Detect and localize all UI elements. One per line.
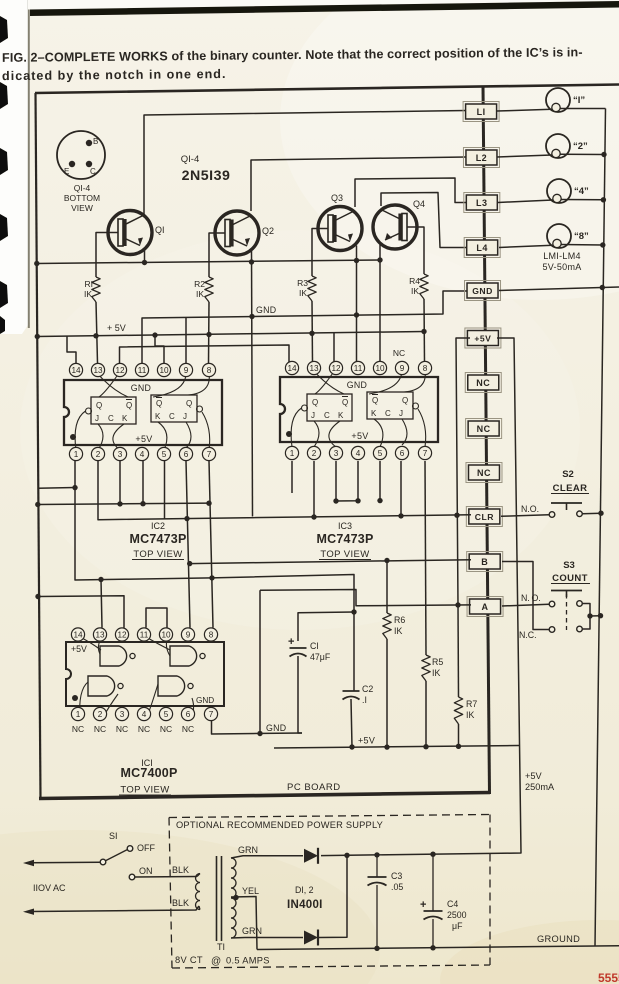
svg-text:TI: TI [217,942,225,952]
svg-text:TOP VIEW: TOP VIEW [320,549,369,560]
svg-text:L3: L3 [476,198,488,208]
svg-text:R5: R5 [432,657,443,667]
svg-text:MC7473P: MC7473P [130,532,187,546]
svg-text:N. O.: N. O. [521,593,541,603]
svg-text:IK: IK [299,288,307,298]
svg-text:+: + [420,899,426,911]
svg-text:Q: Q [126,401,132,410]
svg-text:+: + [288,636,294,648]
svg-text:NC: NC [476,378,490,388]
svg-text:TOP VIEW: TOP VIEW [120,785,169,796]
svg-text:@: @ [211,956,221,967]
svg-text:5: 5 [164,710,169,719]
svg-text:47μF: 47μF [310,652,331,662]
svg-text:12: 12 [331,364,341,373]
svg-text:YEL: YEL [242,886,259,896]
svg-text:NC: NC [160,724,172,734]
svg-text:CI: CI [310,641,319,651]
svg-text:1: 1 [74,450,79,459]
svg-text:C2: C2 [362,684,373,694]
svg-text:13: 13 [93,366,103,375]
svg-text:Q: Q [312,398,318,407]
svg-text:Q: Q [96,401,102,410]
svg-text:7: 7 [423,449,428,458]
svg-text:TOP VIEW: TOP VIEW [133,549,182,560]
svg-text:GND: GND [472,286,493,296]
svg-text:K: K [122,414,128,423]
svg-text:QI: QI [155,225,165,235]
svg-text:QI-4: QI-4 [181,154,199,165]
svg-text:5: 5 [378,449,383,458]
svg-text:4: 4 [356,449,361,458]
svg-text:14: 14 [71,366,81,375]
svg-text:ON: ON [139,866,153,876]
svg-text:IK: IK [84,289,92,299]
svg-text:GND: GND [196,696,214,705]
svg-text:Q2: Q2 [262,226,274,236]
svg-text:5: 5 [162,450,167,459]
svg-text:QI-4: QI-4 [74,183,91,193]
svg-text:NC: NC [477,468,491,478]
svg-text:IIOV AC: IIOV AC [33,883,66,893]
svg-text:2: 2 [312,449,317,458]
svg-text:J: J [311,411,315,420]
svg-text:Q: Q [372,396,378,405]
svg-text:250mA: 250mA [525,782,555,792]
svg-text:8V CT: 8V CT [175,955,203,965]
svg-text:Q: Q [342,398,348,407]
svg-text:K: K [338,411,344,420]
svg-text:GND: GND [266,723,286,733]
svg-text:B: B [481,557,488,567]
svg-text:C: C [385,409,391,418]
svg-text:OPTIONAL RECOMMENDED POWER: OPTIONAL RECOMMENDED POWER SUPPLY [176,820,383,830]
svg-text:C3: C3 [391,871,402,881]
svg-text:7: 7 [209,710,214,719]
svg-text:NC: NC [94,724,106,734]
svg-text:5V-50mA: 5V-50mA [542,262,581,272]
svg-text:BLK: BLK [172,865,189,875]
svg-text:BOTTOM: BOTTOM [64,193,100,203]
svg-text:“I”: “I” [573,95,585,106]
svg-text:IK: IK [196,289,204,299]
svg-text:IC2: IC2 [151,521,165,531]
svg-text:55555: 55555 [598,971,619,984]
svg-text:11: 11 [138,366,147,375]
svg-text:E: E [64,167,69,176]
svg-text:NC: NC [72,724,84,734]
svg-text:μF: μF [452,921,463,931]
svg-text:RI: RI [85,279,94,289]
svg-text:IC3: IC3 [338,521,352,531]
svg-text:“8”: “8” [574,231,589,242]
svg-text:C: C [169,412,175,421]
svg-text:14: 14 [73,631,83,640]
svg-text:3: 3 [334,449,339,458]
svg-text:+5V: +5V [358,736,375,746]
svg-text:7: 7 [207,450,212,459]
svg-text:C: C [108,414,114,423]
svg-text:+5V: +5V [135,434,152,444]
svg-text:N.O.: N.O. [521,504,539,514]
svg-text:LI: LI [477,107,486,117]
svg-text:11: 11 [140,631,149,640]
svg-text:14: 14 [287,364,297,373]
svg-text:SI: SI [109,831,118,841]
svg-text:CLR: CLR [475,512,494,522]
svg-text:12: 12 [115,366,125,375]
svg-text:4: 4 [140,450,145,459]
svg-text:6: 6 [186,710,191,719]
svg-text:MC7400P: MC7400P [121,766,178,780]
svg-text:J: J [183,412,187,421]
svg-text:IK: IK [411,286,419,296]
svg-text:11: 11 [354,364,363,373]
svg-text:Q: Q [186,399,192,408]
svg-text:A: A [482,602,489,612]
svg-text:LMI-LM4: LMI-LM4 [543,251,581,261]
svg-text:VIEW: VIEW [71,203,93,213]
svg-text:4: 4 [142,710,147,719]
svg-text:1: 1 [76,710,81,719]
svg-text:DI, 2: DI, 2 [295,885,314,895]
svg-text:NC: NC [182,724,194,734]
svg-text:S2: S2 [562,469,574,480]
svg-text:L2: L2 [476,153,488,163]
svg-text:.05: .05 [391,882,403,892]
svg-text:K: K [371,409,377,418]
svg-text:+5V: +5V [525,771,542,781]
svg-text:“4”: “4” [574,186,589,197]
svg-text:3: 3 [118,450,123,459]
svg-text:IK: IK [394,626,402,636]
svg-text:8: 8 [209,631,214,640]
svg-text:Q3: Q3 [331,193,343,203]
svg-text:IK: IK [432,668,440,678]
svg-text:IN400I: IN400I [287,899,323,911]
svg-text:1: 1 [290,449,295,458]
svg-text:Q: Q [402,396,408,405]
svg-text:C: C [90,167,96,176]
svg-text:NC: NC [393,348,405,358]
svg-text:PC BOARD: PC BOARD [287,782,341,793]
svg-text:OFF: OFF [137,843,155,853]
svg-text:3: 3 [120,710,125,719]
svg-text:+5V: +5V [474,333,491,343]
svg-text:dicated by the notch in one en: dicated by the notch in one end. [2,67,227,83]
svg-text:0.5 AMPS: 0.5 AMPS [226,956,270,966]
svg-text:9: 9 [400,364,405,373]
svg-text:2: 2 [96,450,101,459]
svg-text:13: 13 [309,364,319,373]
svg-text:NC: NC [138,724,150,734]
svg-text:10: 10 [375,364,385,373]
svg-text:“2”: “2” [573,141,588,152]
svg-text:GROUND: GROUND [537,934,580,944]
svg-text:C: C [324,411,330,420]
svg-text:6: 6 [400,449,405,458]
svg-text:GRN: GRN [242,926,262,936]
svg-text:NC: NC [116,724,128,734]
svg-text:R7: R7 [466,699,477,709]
svg-text:S3: S3 [563,560,575,571]
svg-text:R3: R3 [297,278,308,288]
svg-text:10: 10 [159,366,169,375]
svg-text:10: 10 [161,631,171,640]
svg-text:GND: GND [131,383,151,393]
svg-text:BLK: BLK [172,898,189,908]
svg-text:COUNT: COUNT [552,573,588,584]
svg-text:2N5I39: 2N5I39 [182,168,231,184]
svg-text:R2: R2 [194,279,205,289]
svg-text:R6: R6 [394,615,405,625]
svg-text:GRN: GRN [238,845,258,855]
svg-text:B: B [93,137,98,146]
svg-text:.I: .I [362,695,367,705]
svg-text:6: 6 [184,450,189,459]
svg-text:J: J [95,414,99,423]
svg-text:Q4: Q4 [413,199,425,209]
svg-text:9: 9 [184,366,189,375]
svg-text:+ 5V: + 5V [107,323,126,333]
svg-text:CLEAR: CLEAR [553,483,588,494]
svg-text:2500: 2500 [447,910,467,920]
svg-text:NC: NC [477,424,491,434]
svg-text:+5V: +5V [351,431,368,441]
svg-text:9: 9 [186,631,191,640]
svg-text:L4: L4 [476,243,488,253]
svg-text:8: 8 [207,366,212,375]
svg-text:GND: GND [347,380,367,390]
svg-text:IK: IK [466,710,474,720]
svg-text:MC7473P: MC7473P [317,532,374,546]
svg-text:13: 13 [95,631,105,640]
svg-text:8: 8 [423,364,428,373]
svg-text:K: K [155,412,161,421]
svg-text:Q: Q [156,399,162,408]
svg-text:N.C.: N.C. [519,630,537,640]
svg-text:+5V: +5V [71,644,87,654]
svg-text:R4: R4 [409,276,420,286]
svg-text:C4: C4 [447,899,458,909]
svg-text:J: J [399,409,403,418]
svg-text:GND: GND [256,305,276,315]
svg-text:12: 12 [117,631,127,640]
svg-text:2: 2 [98,710,103,719]
